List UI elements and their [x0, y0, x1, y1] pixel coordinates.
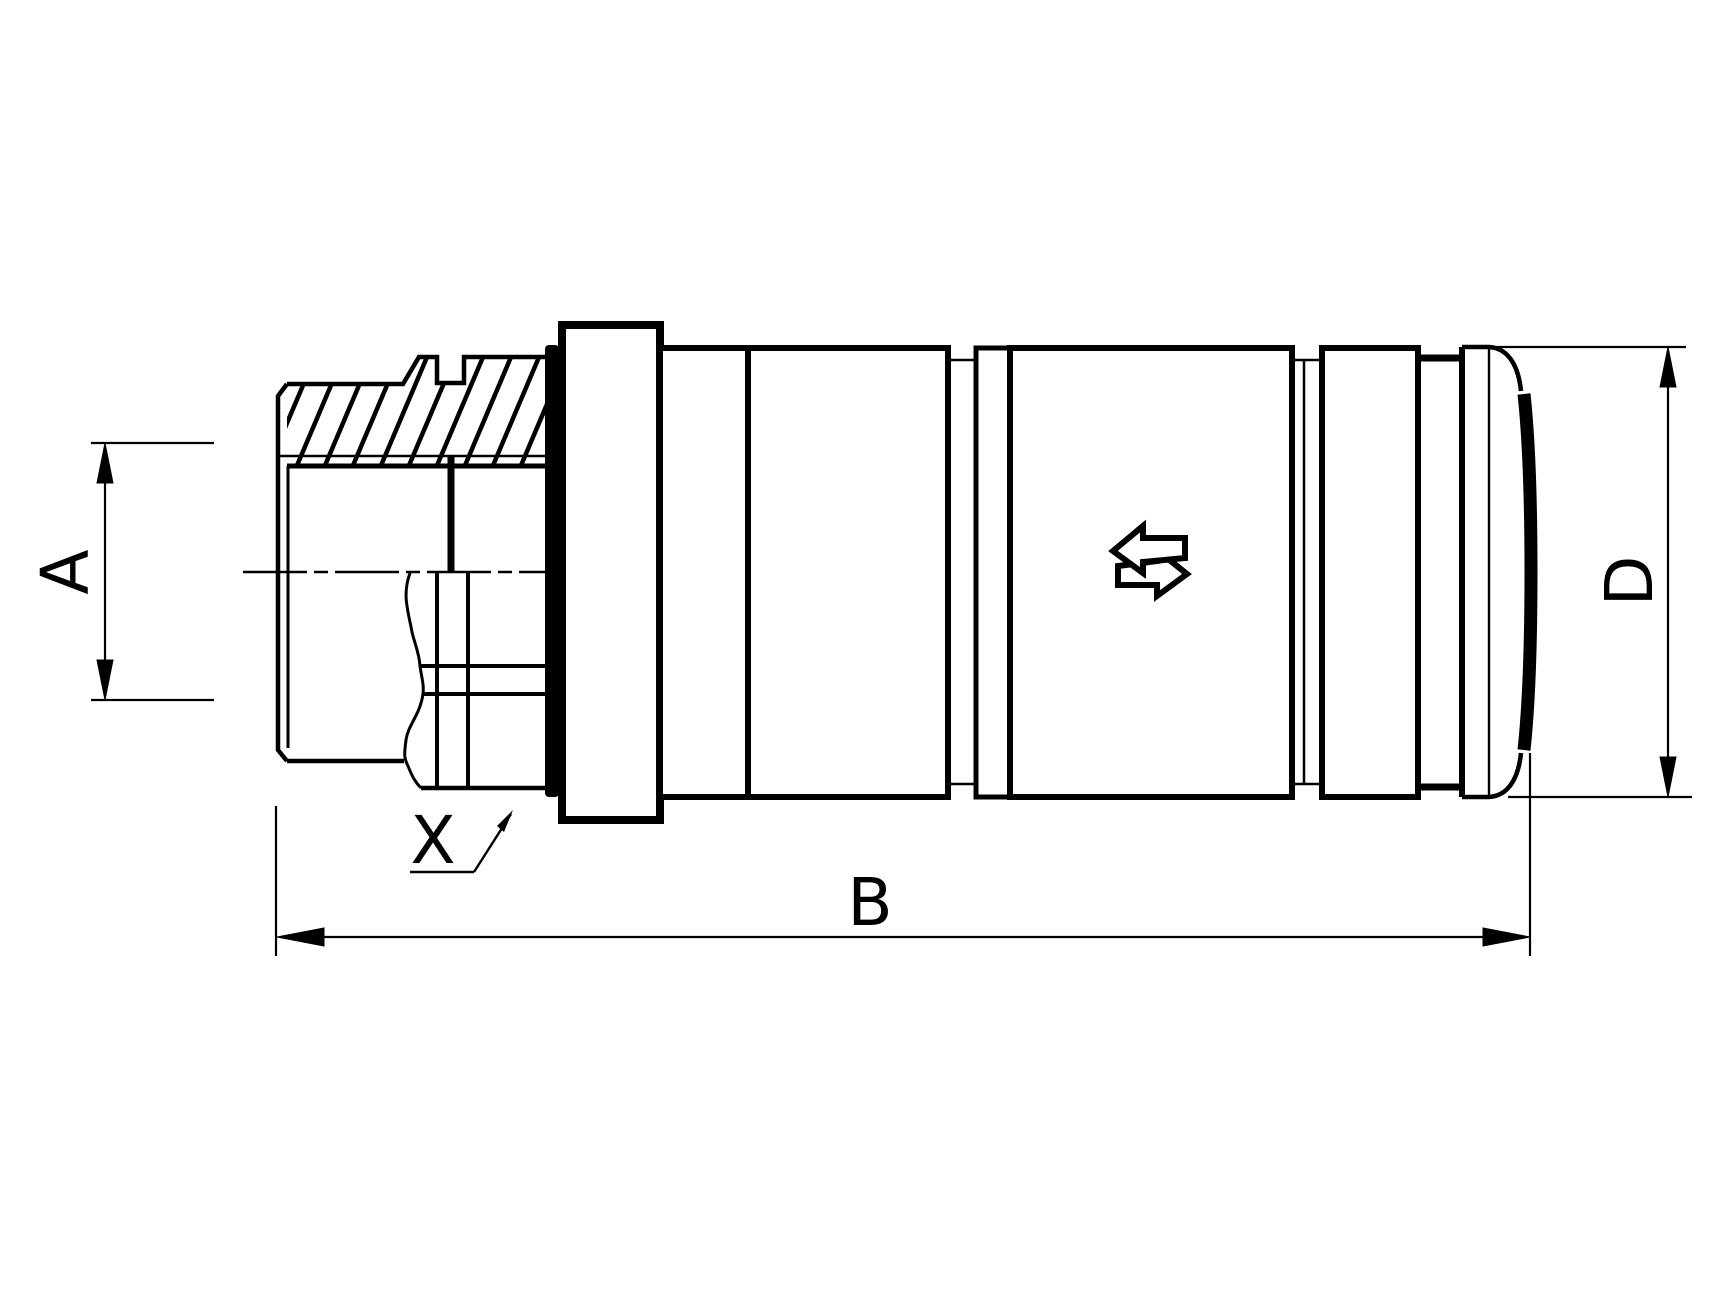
- end-collar: [1322, 348, 1418, 797]
- dim-d-label: D: [1591, 556, 1668, 607]
- dim-a-label: A: [27, 549, 104, 594]
- seal-washer: [545, 345, 559, 797]
- dim-b-label: B: [847, 864, 892, 941]
- coupling-technical-drawing: A B D X: [0, 0, 1722, 1292]
- rubber-bumper-edge: [1524, 394, 1531, 750]
- coupling-body: [660, 348, 1462, 797]
- body-sleeve-left: [660, 348, 948, 797]
- technical-drawing-canvas: A B D X: [0, 0, 1722, 1292]
- x-callout-label: X: [410, 802, 455, 879]
- mounting-flange: [562, 325, 660, 820]
